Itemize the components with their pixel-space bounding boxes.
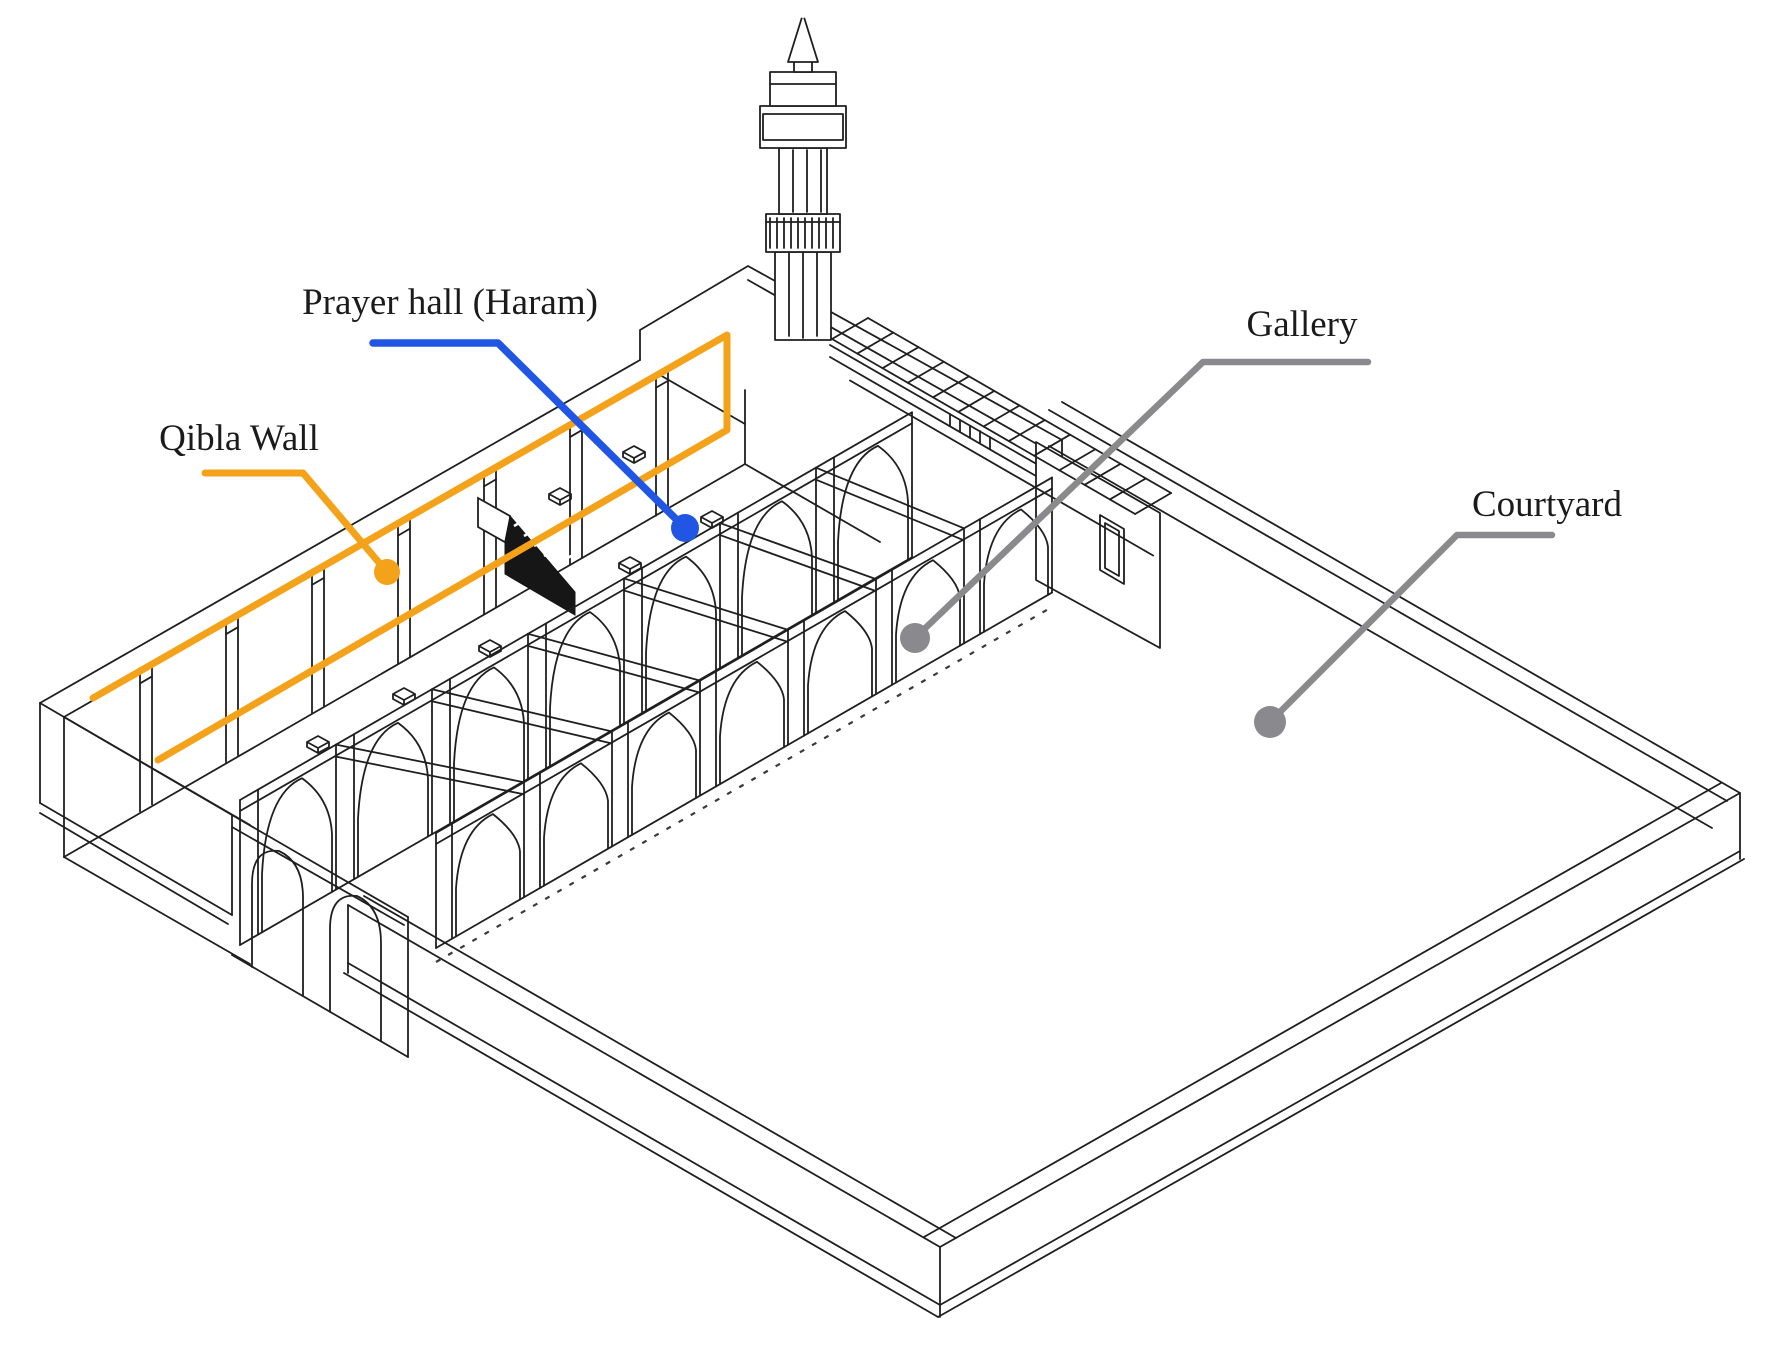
gallery-label: Gallery	[1247, 304, 1358, 345]
courtyard-leader-line	[1270, 535, 1552, 722]
mosque-axonometric-diagram: Prayer hall (Haram) Qibla Wall Gallery C…	[0, 0, 1787, 1358]
prayer-hall-label: Prayer hall (Haram)	[302, 282, 598, 323]
minbar-stairs	[478, 498, 588, 615]
minaret	[760, 8, 846, 340]
minaret-upper-balcony	[760, 106, 846, 148]
prayer-hall-leader-line	[373, 343, 685, 528]
prayer-hall-marker-dot	[671, 514, 699, 542]
column-bases	[307, 446, 723, 753]
qibla-wall-label: Qibla Wall	[159, 418, 319, 459]
qibla-wall-marker-dot	[374, 559, 400, 585]
courtyard-label: Courtyard	[1472, 484, 1623, 525]
minaret-spire	[788, 14, 818, 62]
courtyard-marker-dot	[1254, 706, 1286, 738]
minaret-finial-ball	[798, 8, 808, 18]
gallery-east-wall	[1036, 442, 1160, 648]
gallery-marker-dot	[900, 623, 930, 653]
gallery-tie-beams	[336, 468, 964, 795]
diagram-svg: Prayer hall (Haram) Qibla Wall Gallery C…	[0, 0, 1787, 1358]
